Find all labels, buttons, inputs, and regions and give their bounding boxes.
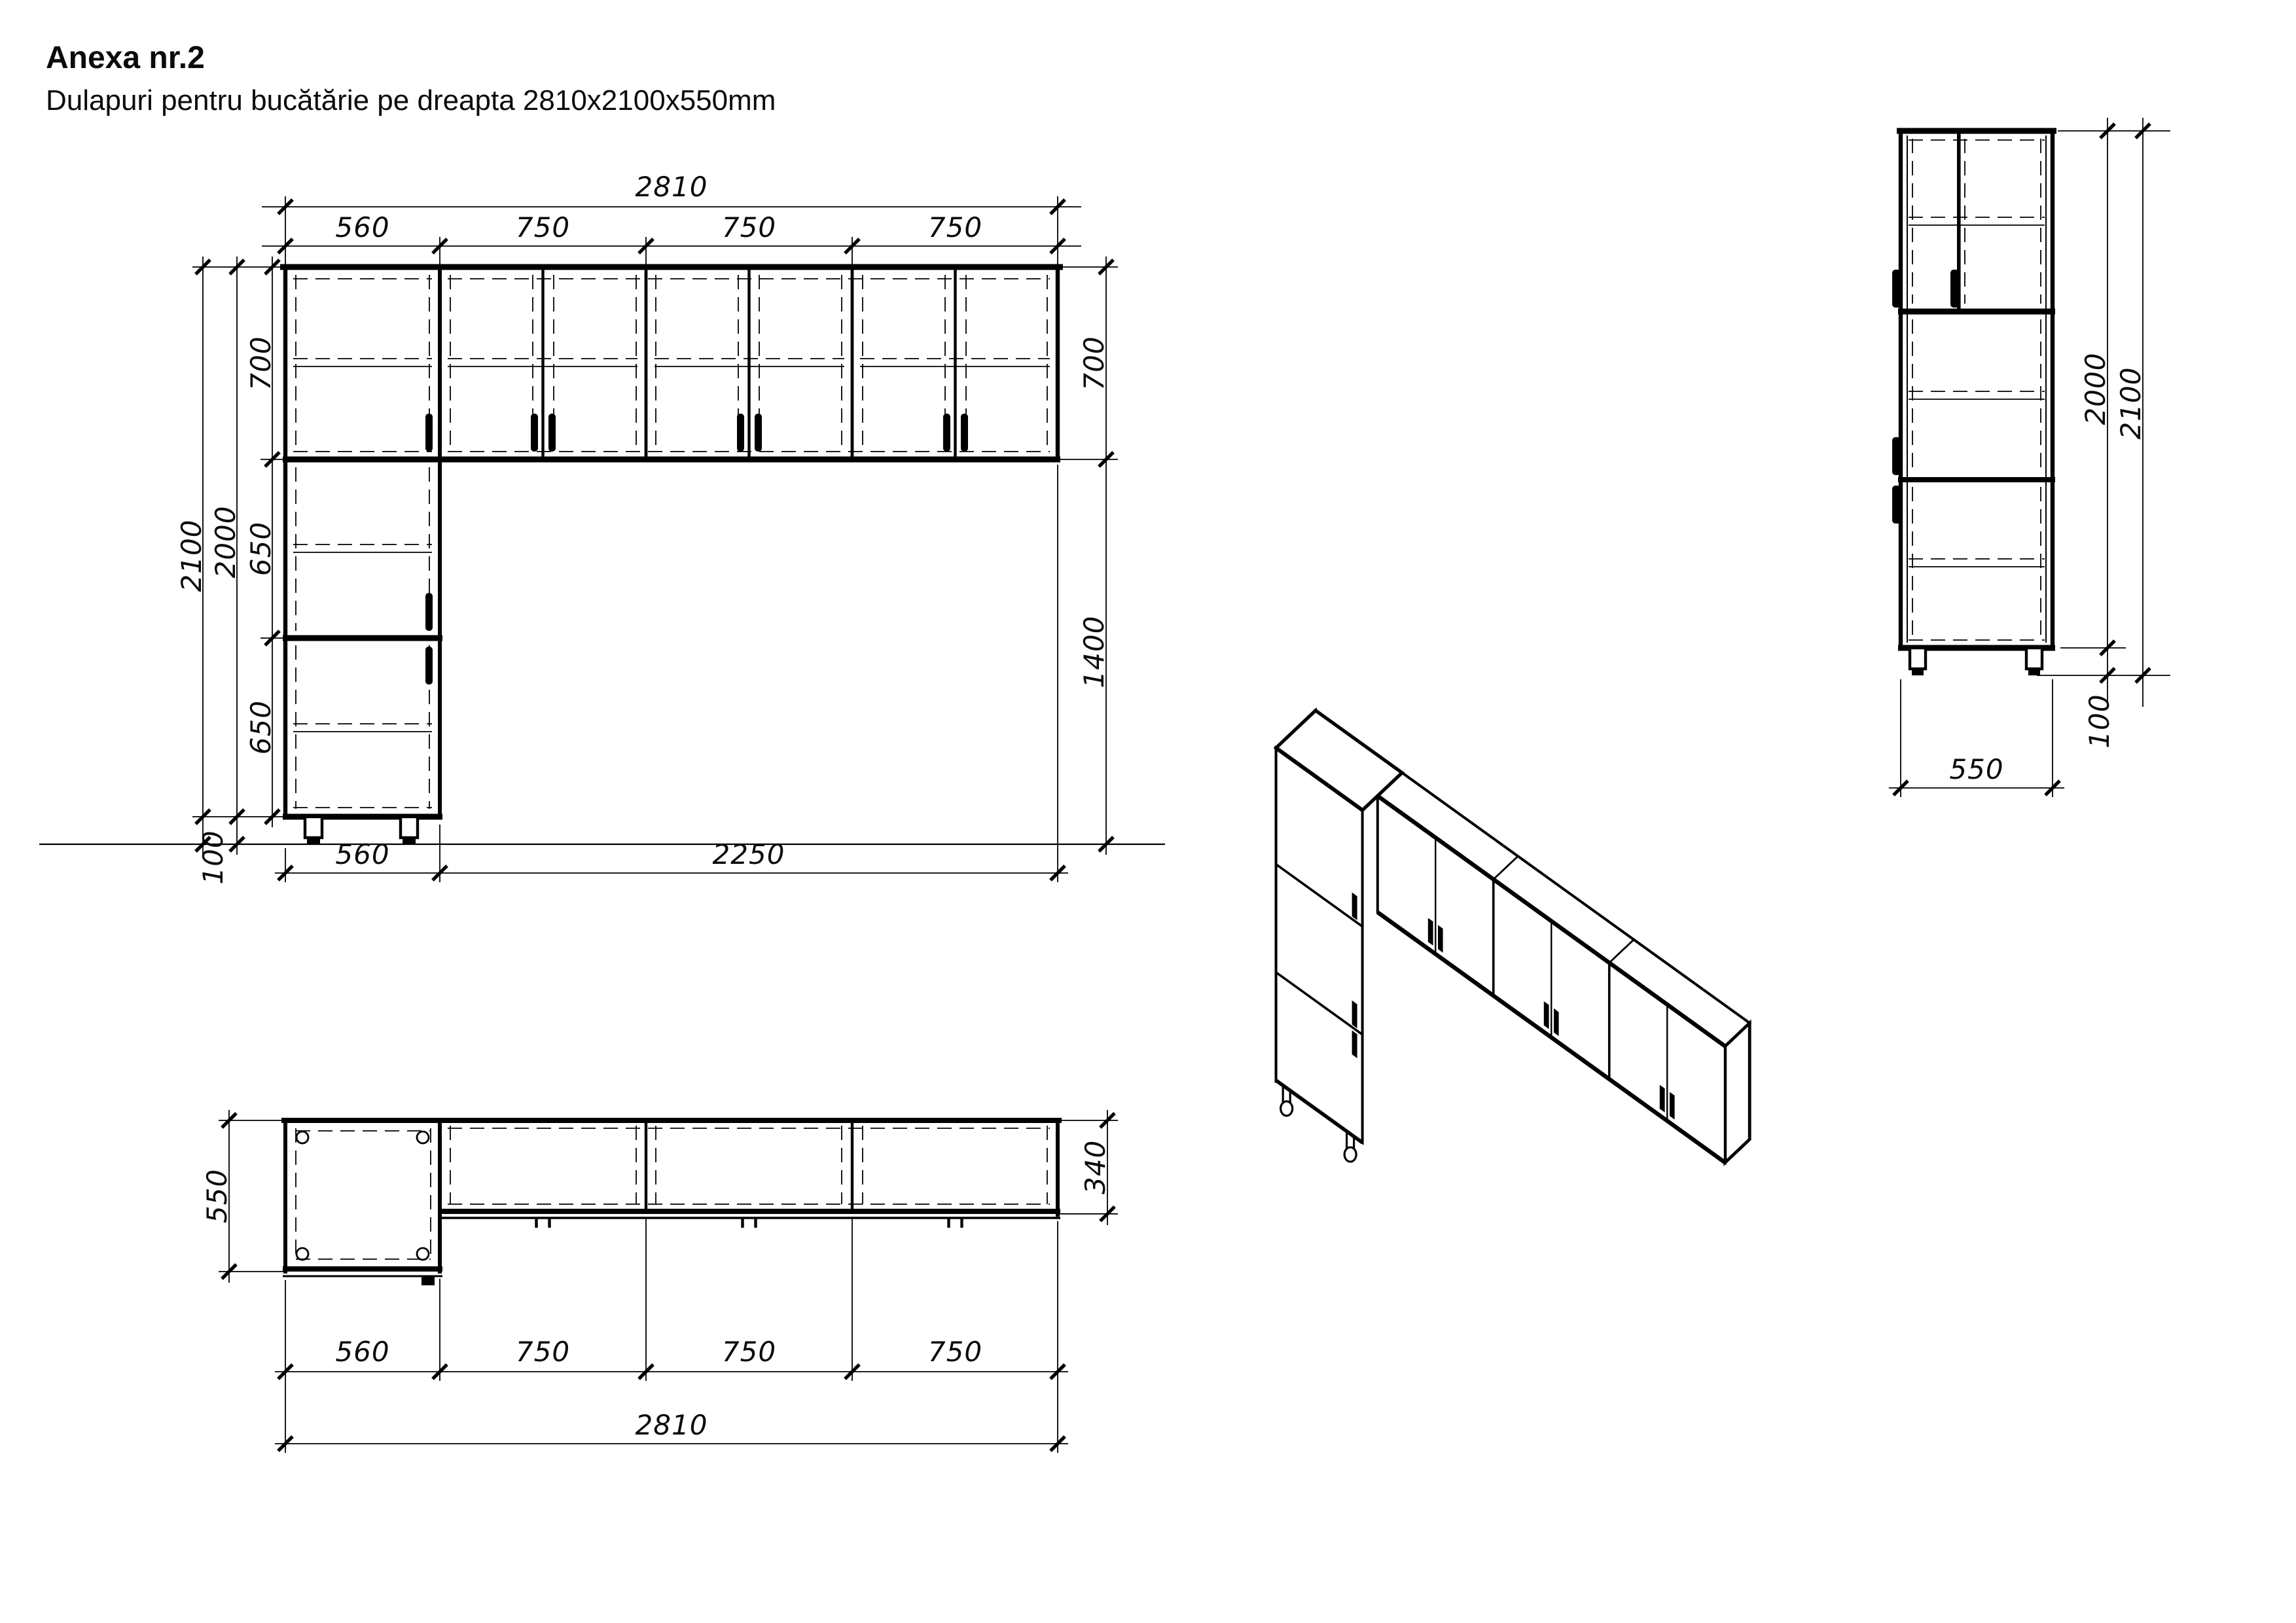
dim-side-overall: 2100 (2115, 367, 2147, 440)
side-outline (1897, 131, 2056, 648)
door-handle (1545, 1003, 1549, 1027)
dim-side-depth: 550 (1949, 753, 2003, 785)
cabinet-leg-foot (403, 838, 416, 844)
door-handle (531, 414, 538, 452)
dim-front-upper-height: 700 (245, 336, 277, 390)
wall-cabinets-end-face (1725, 1023, 1749, 1162)
dim-plan-seg-750a: 750 (516, 1336, 570, 1368)
side-cabinet-legs (1910, 648, 2042, 675)
dim-plan-wall-depth: 340 (1079, 1140, 1111, 1194)
title-block: Anexa nr.2 Dulapuri pentru bucătărie pe … (46, 41, 776, 116)
door-handle (548, 414, 556, 452)
hidden-detail-lines (293, 139, 2045, 1262)
dim-front-total-width: 2810 (636, 171, 708, 203)
plan-dimension-labels: 550 340 560 750 750 750 2810 (201, 1140, 1111, 1441)
dim-front-seg-750a: 750 (516, 211, 570, 243)
door-handle (1439, 926, 1443, 951)
tall-cabinet-front-face (1276, 748, 1363, 1143)
plan-dimensions (219, 1110, 1118, 1453)
front-dimension-labels: 2810 560 750 750 750 700 650 650 2000 21… (175, 171, 1110, 885)
door-handle (1950, 270, 1959, 308)
dim-front-carcass-height: 2000 (209, 506, 242, 579)
front-dimensions (192, 196, 1118, 882)
leg-circle (296, 1132, 308, 1143)
dim-plan-total: 2810 (636, 1409, 708, 1441)
dim-front-seg-560: 560 (335, 211, 389, 243)
door-handle (1353, 894, 1357, 919)
cabinet-leg (305, 817, 322, 838)
dim-plan-seg-750c: 750 (928, 1336, 982, 1368)
dim-front-bottom-2250: 2250 (713, 838, 785, 870)
door-handle (1353, 1002, 1357, 1027)
side-dimensions (1889, 118, 2170, 797)
door-handle (1554, 1010, 1558, 1035)
leg-circle (417, 1132, 429, 1143)
leg-circle (417, 1248, 429, 1260)
dim-plan-seg-560: 560 (335, 1336, 389, 1368)
door-handle (943, 414, 950, 452)
door-handle (755, 414, 762, 452)
plan-view: 550 340 560 750 750 750 2810 (201, 1110, 1118, 1453)
plan-leg-stub (422, 1276, 435, 1285)
side-dimension-labels: 2000 2100 550 100 (1949, 353, 2147, 785)
plan-leg-circles (296, 1132, 429, 1260)
dim-side-carcass: 2000 (2079, 353, 2111, 425)
cabinet-leg (2026, 648, 2042, 669)
side-view: 2000 2100 550 100 (1889, 118, 2170, 797)
plan-outline (281, 1120, 1062, 1276)
cabinet-leg-foot (307, 838, 320, 844)
dim-front-leg-height: 100 (197, 830, 229, 884)
door-handle (1892, 486, 1901, 524)
front-elevation-view: 2810 560 750 750 750 700 650 650 2000 21… (39, 171, 1165, 885)
door-handle (1660, 1086, 1664, 1111)
page-title: Anexa nr.2 (46, 41, 205, 75)
dim-front-overall-height: 2100 (175, 520, 207, 592)
door-handle (1892, 270, 1901, 308)
dimension-tick-marks (196, 124, 2150, 1451)
dim-front-low-height: 650 (245, 700, 277, 755)
technical-drawing-sheet: Anexa nr.2 Dulapuri pentru bucătărie pe … (0, 0, 2296, 1623)
dim-front-seg-750c: 750 (928, 211, 982, 243)
dim-front-mid-height: 650 (245, 522, 277, 576)
cabinet-leg (401, 817, 418, 838)
dim-side-legs: 100 (2083, 694, 2115, 748)
cabinet-leg (1910, 648, 1926, 669)
door-handle (1892, 437, 1901, 475)
plan-hinge-marks (422, 1218, 962, 1285)
dim-front-right-lower: 1400 (1078, 616, 1110, 688)
leg-circle (296, 1248, 308, 1260)
cabinet-leg-foot (2028, 669, 2040, 675)
dim-plan-depth: 550 (201, 1169, 233, 1223)
door-handle (1670, 1093, 1674, 1118)
door-handle (1353, 1031, 1357, 1057)
door-handle (961, 414, 968, 452)
dim-plan-seg-750b: 750 (722, 1336, 776, 1368)
front-door-handles (425, 414, 968, 685)
cabinet-leg-foot (1912, 669, 1924, 675)
dim-front-bottom-560: 560 (335, 838, 389, 870)
door-handle (1429, 919, 1433, 944)
page-subtitle: Dulapuri pentru bucătărie pe dreapta 281… (46, 84, 776, 116)
isometric-view (1276, 711, 1750, 1163)
dim-front-seg-750b: 750 (722, 211, 776, 243)
dim-front-right-upper: 700 (1078, 336, 1110, 390)
